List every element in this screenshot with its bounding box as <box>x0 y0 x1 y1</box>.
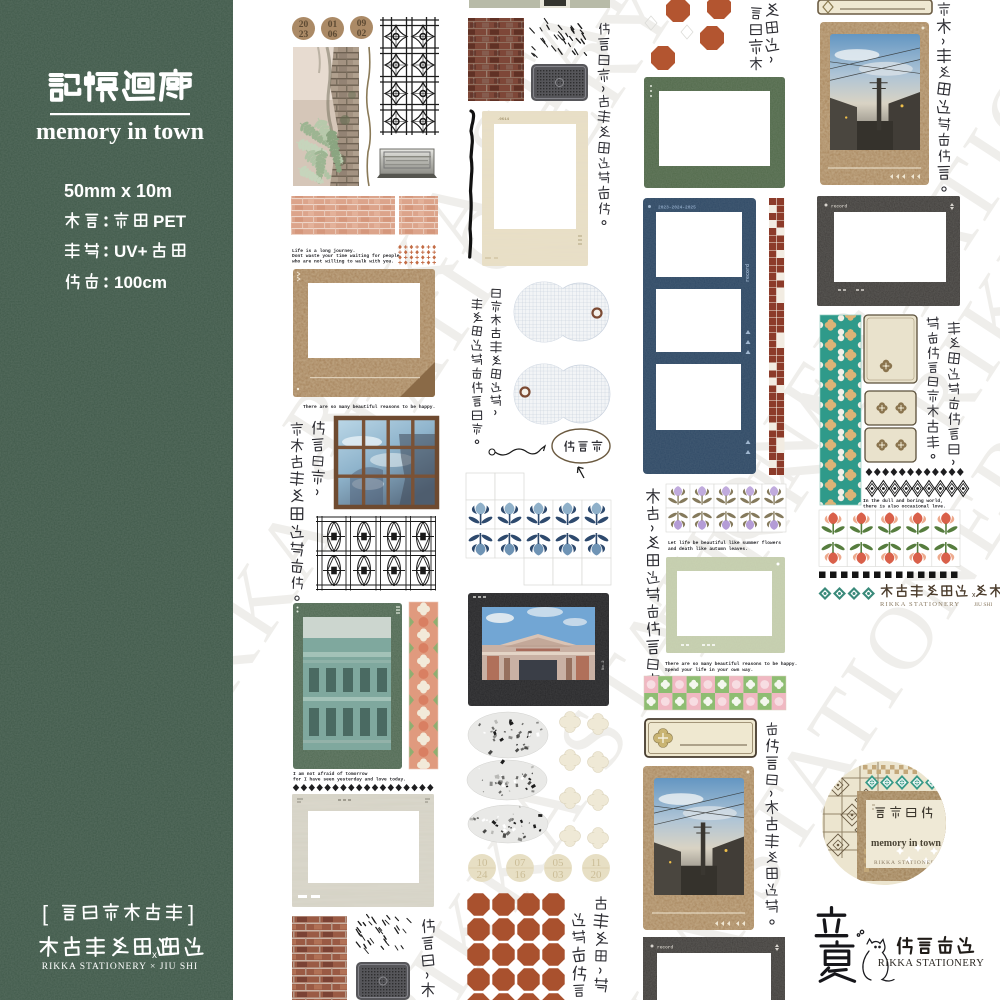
svg-text:UV+: UV+ <box>114 242 148 261</box>
svg-text:24: 24 <box>477 869 489 881</box>
svg-text:07: 07 <box>515 857 527 869</box>
svg-text:memory in town: memory in town <box>36 119 204 145</box>
svg-text:In the dull and boring world,: In the dull and boring world, <box>863 498 943 504</box>
svg-text:who are not willing to walk wi: who are not willing to walk with you. <box>292 258 394 264</box>
svg-text:PET: PET <box>153 212 187 231</box>
svg-text:There are so many beautiful re: There are so many beautiful reasons to b… <box>303 404 435 410</box>
svg-text:.0614: .0614 <box>497 118 510 122</box>
svg-text:There are so many beautiful re: There are so many beautiful reasons to b… <box>665 661 797 667</box>
svg-text:x: x <box>972 592 976 599</box>
svg-text:x: x <box>152 950 157 961</box>
svg-text:RIKKA STATIONERY × JIU SHI: RIKKA STATIONERY × JIU SHI <box>42 962 198 972</box>
svg-text:]: ] <box>188 901 194 926</box>
svg-text:Life is a long journey.: Life is a long journey. <box>292 248 355 254</box>
svg-text:09: 09 <box>357 19 367 29</box>
svg-text:record: record <box>745 264 751 282</box>
svg-text:Let life be beautiful like sum: Let life be beautiful like summer flower… <box>668 540 781 546</box>
svg-text:2023-2024-2025: 2023-2024-2025 <box>658 205 696 211</box>
svg-text:I am not afraid of tomorrow: I am not afraid of tomorrow <box>293 771 368 777</box>
svg-text:record: record <box>831 204 848 210</box>
svg-text:05: 05 <box>553 857 565 869</box>
svg-text:01: 01 <box>328 20 338 30</box>
svg-text:memory in town: memory in town <box>871 838 941 849</box>
svg-text:10: 10 <box>477 857 489 869</box>
svg-text:RIKKA STATIONERY: RIKKA STATIONERY <box>878 958 985 969</box>
svg-text:20: 20 <box>299 20 309 30</box>
svg-text:for I have seen yesterday and: for I have seen yesterday and love today… <box>293 776 406 782</box>
svg-text:20: 20 <box>591 869 603 881</box>
svg-text:record: record <box>657 945 674 951</box>
svg-text:100cm: 100cm <box>114 273 167 292</box>
svg-text:16: 16 <box>515 869 527 881</box>
svg-text:Dont waste your time waiting f: Dont waste your time waiting for people <box>292 253 400 259</box>
svg-text:50mm x 10m: 50mm x 10m <box>64 181 172 201</box>
svg-text:02: 02 <box>357 29 367 39</box>
svg-text:23: 23 <box>299 30 309 40</box>
svg-text:No.2: No.2 <box>602 660 606 670</box>
svg-text:there is also occasional love.: there is also occasional love. <box>863 503 946 509</box>
svg-text:03: 03 <box>553 869 565 881</box>
svg-text:11: 11 <box>591 857 602 869</box>
svg-text:and death like autumn leaves.: and death like autumn leaves. <box>668 546 748 552</box>
svg-text:06: 06 <box>328 30 338 40</box>
svg-text:JIU SHI: JIU SHI <box>974 602 992 608</box>
svg-text:[: [ <box>42 901 48 926</box>
svg-text:Spend your life in your own wa: Spend your life in your own way. <box>665 667 753 673</box>
svg-text:RIKKA STATIONERY: RIKKA STATIONERY <box>880 601 960 608</box>
